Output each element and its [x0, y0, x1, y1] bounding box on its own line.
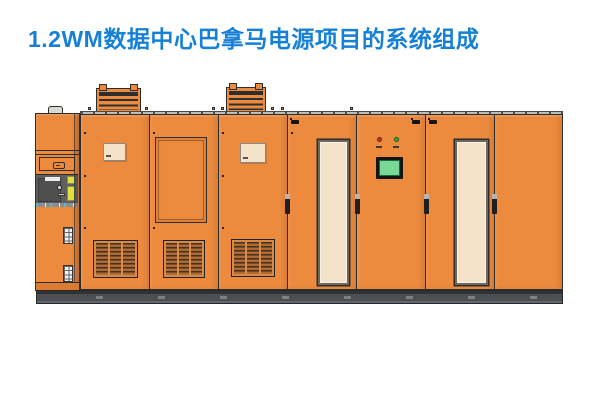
operating-knob	[57, 185, 62, 190]
bolt-icon	[271, 107, 274, 110]
compartment-recess	[38, 178, 61, 202]
grille-column	[247, 242, 258, 274]
latch-icon	[412, 120, 420, 124]
label-mark	[243, 157, 248, 159]
grille-column	[191, 243, 202, 275]
slide-canvas: 1.2WM数据中心巴拿马电源项目的系统组成	[0, 0, 600, 404]
document-pocket	[240, 143, 266, 163]
slot-dash	[56, 165, 60, 167]
panel-inner-line	[158, 140, 204, 220]
door-handle-icon	[285, 194, 290, 214]
grille-column	[234, 242, 245, 274]
vent-louvers	[229, 91, 263, 110]
hinge-icon	[222, 132, 224, 134]
knob-plate	[58, 193, 65, 196]
hinge-icon	[222, 227, 224, 229]
recessed-access-panel	[155, 137, 207, 223]
hmi-screen-glass	[379, 160, 400, 176]
vent-lug-icon	[229, 83, 237, 90]
slot-icon	[53, 162, 65, 169]
panel-seam	[36, 150, 79, 151]
grille-column	[110, 243, 122, 275]
latch-icon	[291, 120, 299, 124]
door-handle-icon	[492, 194, 497, 214]
red-indicator-light	[377, 137, 382, 142]
floor-grille-3	[231, 239, 275, 277]
pushbutton-strip-2	[63, 265, 73, 282]
indicator-label-mark	[376, 146, 382, 148]
breaker-compartment	[36, 174, 78, 207]
indicator-label-mark	[393, 146, 399, 148]
latch-icon	[429, 120, 437, 124]
door-window	[318, 140, 349, 285]
grille-column	[261, 242, 272, 274]
lift-handle	[48, 106, 63, 114]
vent-louvers	[99, 92, 138, 110]
plinth-segment-ticks	[41, 296, 558, 299]
vented-cabinet-2	[218, 114, 288, 290]
window-door-cabinet-1	[287, 114, 357, 290]
hmi-control-cabinet	[356, 114, 426, 290]
bolt-icon	[221, 107, 224, 110]
nameplate	[45, 177, 60, 181]
bolt-icon	[350, 107, 353, 110]
grille-column	[123, 243, 135, 275]
kick-plate	[36, 282, 79, 290]
hinge-icon	[84, 175, 86, 177]
slide-title: 1.2WM数据中心巴拿马电源项目的系统组成	[28, 20, 588, 54]
vent-lug-icon	[130, 84, 138, 91]
window-door-cabinet-2	[425, 114, 495, 290]
hmi-screen	[376, 157, 403, 179]
document-slot-panel	[39, 157, 75, 171]
pushbutton-strip-1	[63, 227, 73, 244]
hinge-icon	[153, 132, 155, 134]
floor-grille-1	[93, 240, 138, 278]
auxiliary-switch-cabinet	[35, 113, 80, 291]
door-window	[455, 140, 488, 285]
vent-lug-icon	[99, 84, 107, 91]
door-handle-icon	[424, 194, 429, 214]
hinge-icon	[222, 175, 224, 177]
base-plinth	[36, 290, 563, 304]
hinge-icon	[153, 227, 155, 229]
bolt-icon	[88, 107, 91, 110]
vent-lug-icon	[255, 83, 263, 90]
grille-column	[96, 243, 108, 275]
hinge-icon	[84, 227, 86, 229]
grille-column	[166, 243, 177, 275]
vented-cabinet-1	[80, 114, 150, 290]
terminal-strip	[36, 203, 78, 207]
label-mark	[106, 155, 111, 157]
bolt-icon	[145, 107, 148, 110]
bolt-icon	[281, 107, 284, 110]
grille-column	[179, 243, 190, 275]
hinge-icon	[291, 132, 293, 134]
side-panel	[74, 114, 79, 290]
plain-door-cabinet	[494, 114, 563, 290]
recessed-panel-cabinet	[149, 114, 219, 290]
hinge-icon	[84, 132, 86, 134]
roof-vent-1	[96, 88, 141, 113]
green-indicator-light	[394, 137, 399, 142]
panel-seam	[36, 154, 79, 155]
floor-grille-2	[163, 240, 205, 278]
roof-vent-2	[226, 87, 266, 113]
document-pocket	[103, 143, 126, 161]
door-handle-icon	[355, 194, 360, 214]
bolt-icon	[212, 107, 215, 110]
